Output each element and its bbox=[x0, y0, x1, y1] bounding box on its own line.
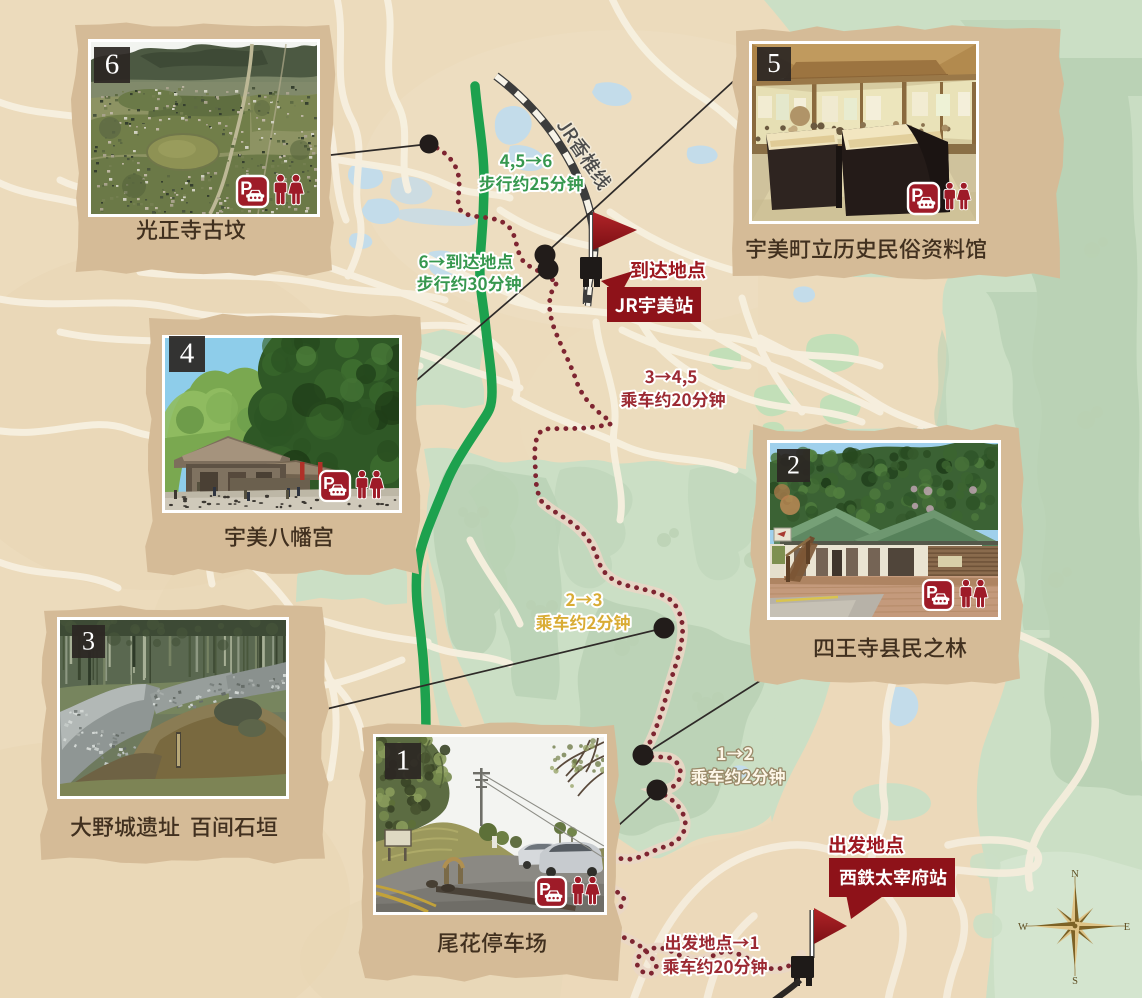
svg-text:5: 5 bbox=[767, 48, 781, 78]
svg-text:4: 4 bbox=[180, 338, 195, 370]
svg-text:6: 6 bbox=[105, 49, 120, 81]
svg-text:3: 3 bbox=[82, 626, 95, 655]
svg-text:1: 1 bbox=[396, 745, 411, 777]
svg-text:S: S bbox=[1072, 976, 1078, 987]
svg-text:W: W bbox=[1018, 922, 1028, 933]
svg-text:E: E bbox=[1124, 922, 1130, 933]
svg-text:2: 2 bbox=[787, 450, 800, 479]
svg-text:N: N bbox=[1071, 869, 1079, 880]
